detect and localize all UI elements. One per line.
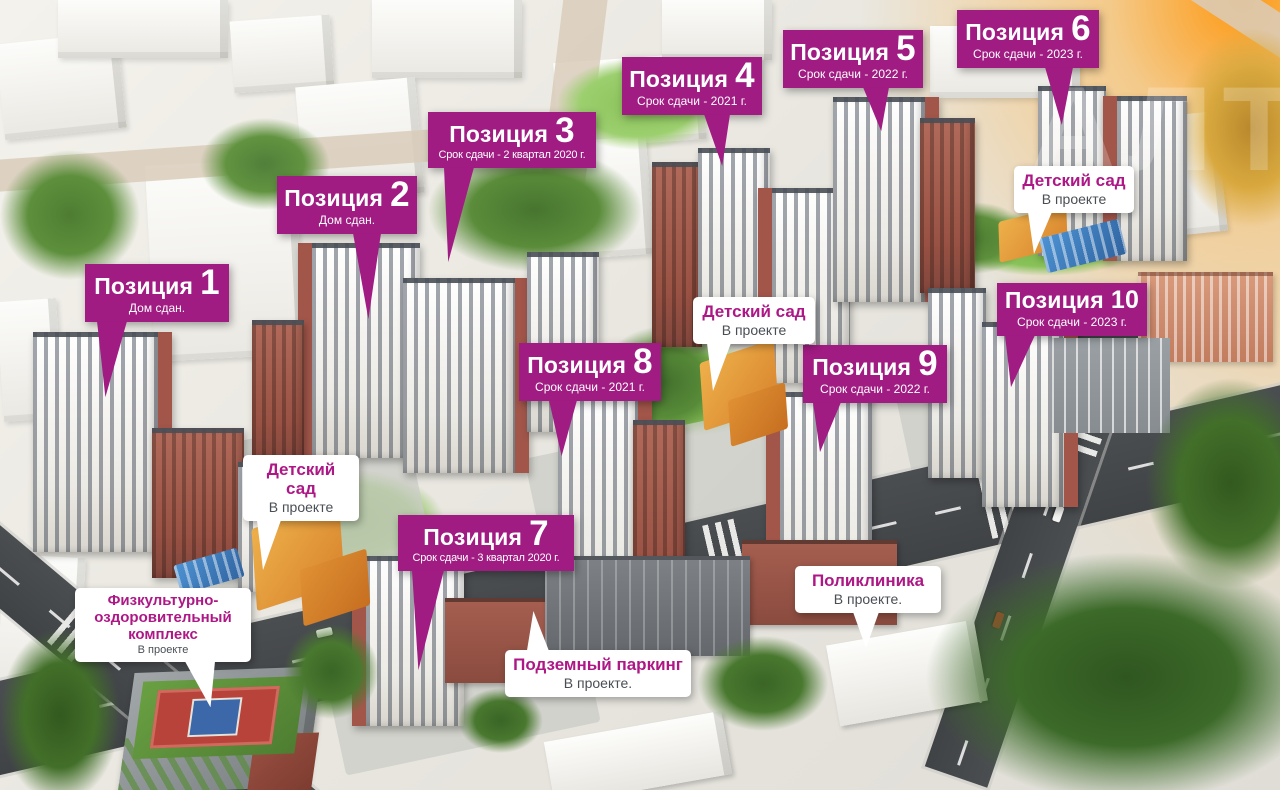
position-word: Позиция [284,186,383,210]
position-subtitle: Срок сдачи - 2 квартал 2020 г. [436,149,588,161]
position-subtitle: Дом сдан. [93,301,221,315]
position-subtitle: Срок сдачи - 2021 г. [527,380,653,394]
callout-kindergarten-center: Детский сад В проекте [693,297,815,344]
position-word: Позиция [449,122,548,146]
city-block [662,0,772,60]
position-title: Позиция9 [811,350,939,379]
position-number: 6 [1071,15,1091,43]
position-word: Позиция [812,355,911,379]
callout-position-2: Позиция2 Дом сдан. [277,176,417,234]
position-subtitle: Срок сдачи - 2022 г. [811,382,939,396]
position-word: Позиция [1005,288,1104,312]
parking-lot [1052,338,1170,433]
city-block [230,15,335,94]
position-subtitle: Дом сдан. [285,213,409,227]
position-title: Позиция5 [791,35,915,64]
callout-position-8: Позиция8 Срок сдачи - 2021 г. [519,343,661,401]
callout-position-4: Позиция4 Срок сдачи - 2021 г. [622,57,762,115]
car [316,627,333,638]
callout-sports-complex: Физкультурно-оздоровительный комплекс В … [75,588,251,662]
position-subtitle: Срок сдачи - 3 квартал 2020 г. [406,552,566,564]
position-number: 3 [555,117,575,145]
callout-polyclinic: Поликлиника В проекте. [795,566,941,613]
parking-podium [545,556,750,656]
position-word: Позиция [790,40,889,64]
callout-position-3: Позиция3 Срок сдачи - 2 квартал 2020 г. [428,112,596,168]
position-number: 2 [390,181,410,209]
callout-position-7: Позиция7 Срок сдачи - 3 квартал 2020 г. [398,515,574,571]
position-title: Позиция4 [630,62,754,91]
facility-title: Детский сад [1022,171,1126,190]
callout-position-10: Позиция10 Срок сдачи - 2023 г. [997,283,1147,336]
position-title: Позиция1 [93,269,221,298]
callout-position-5: Позиция5 Срок сдачи - 2022 г. [783,30,923,88]
position-number: 7 [529,520,549,548]
position-number: 9 [918,350,938,378]
facility-subtitle: В проекте [701,322,807,338]
facility-title: Поликлиника [803,571,933,590]
facility-title: Детский сад [701,302,807,321]
position-subtitle: Срок сдачи - 2023 г. [1005,315,1139,329]
callout-tail [444,167,474,262]
position-subtitle: Срок сдачи - 2023 г. [965,47,1091,61]
position-word: Позиция [965,20,1064,44]
facility-subtitle: В проекте. [513,675,683,691]
callout-position-6: Позиция6 Срок сдачи - 2023 г. [957,10,1099,68]
facility-subtitle: В проекте [83,644,243,656]
building-position-2 [298,243,420,458]
car [1052,505,1065,523]
facility-title: Физкультурно-оздоровительный комплекс [83,593,243,643]
position-number: 10 [1111,290,1139,310]
rooftop-court-field [189,700,240,735]
facility-subtitle: В проекте. [803,591,933,607]
facility-title: Подземный паркинг [513,655,683,674]
position-number: 4 [735,62,755,90]
rooftop-sports-court [150,686,280,749]
callout-kindergarten-left: Детский сад В проекте [243,455,359,521]
callout-underground-parking: Подземный паркинг В проекте. [505,650,691,697]
callout-kindergarten-right: Детский сад В проекте [1014,166,1134,213]
position-title: Позиция8 [527,348,653,377]
sports-complex-building [118,666,323,790]
position-title: Позиция6 [965,15,1091,44]
facility-title: Детский сад [251,460,351,498]
road-light [1090,0,1280,87]
masterplan-render: АЛТ Позиция1 Дом сдан. Позиция2 Дом сдан… [0,0,1280,790]
position-word: Позиция [527,353,626,377]
facility-subtitle: В проекте [1022,191,1126,207]
position-subtitle: Срок сдачи - 2022 г. [791,67,915,81]
car [992,611,1005,629]
position-number: 1 [200,269,220,297]
position-word: Позиция [423,525,522,549]
city-block [58,0,228,58]
building [252,320,304,465]
city-block [372,0,522,78]
callout-position-9: Позиция9 Срок сдачи - 2022 г. [803,345,947,403]
position-number: 5 [896,35,916,63]
position-word: Позиция [629,67,728,91]
position-title: Позиция7 [406,520,566,549]
position-number: 8 [633,348,653,376]
callout-position-1: Позиция1 Дом сдан. [85,264,229,322]
building-position-3 [403,278,529,473]
position-word: Позиция [94,274,193,298]
position-subtitle: Срок сдачи - 2021 г. [630,94,754,108]
position-title: Позиция2 [285,181,409,210]
position-title: Позиция10 [1005,288,1139,312]
facility-subtitle: В проекте [251,499,351,515]
position-title: Позиция3 [436,117,588,146]
building [920,118,975,293]
